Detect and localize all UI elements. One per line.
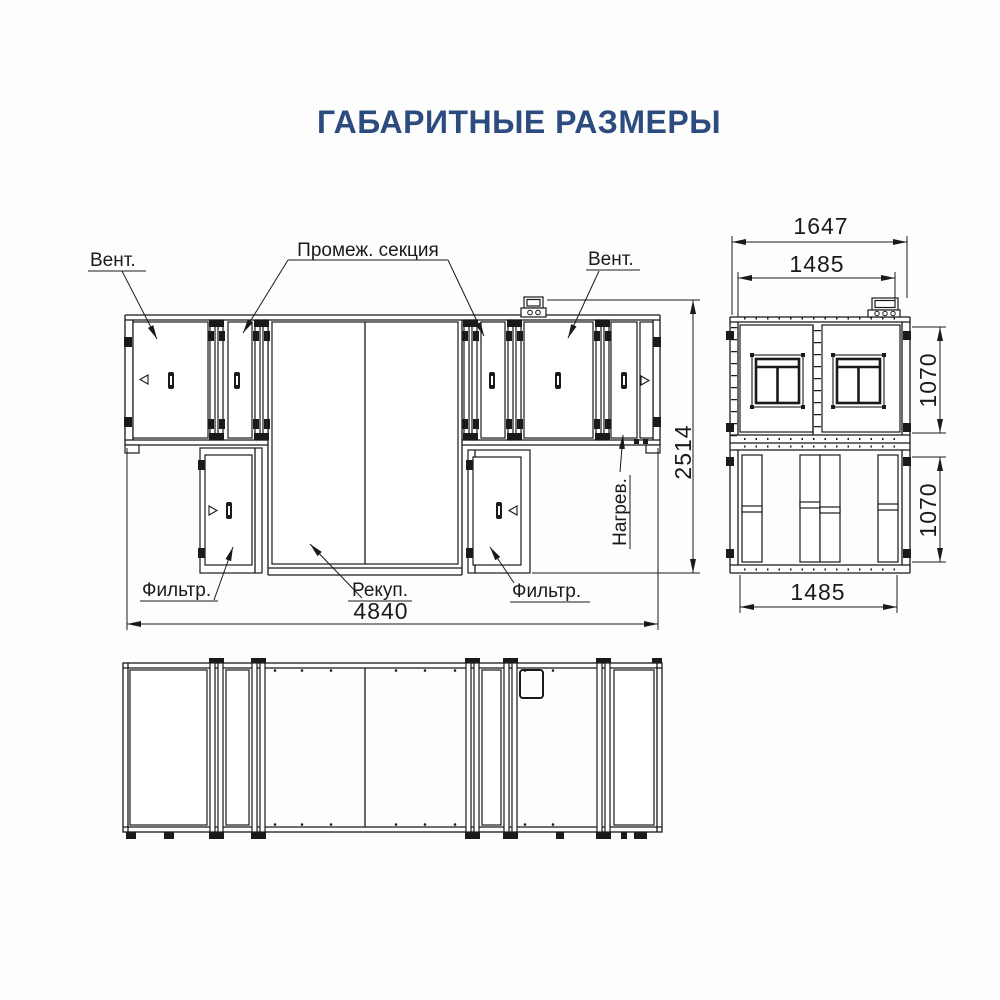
label-fan-right: Вент. xyxy=(588,249,634,270)
side-panel-right xyxy=(822,325,900,432)
plan-post xyxy=(251,658,266,839)
plan-post xyxy=(503,658,518,839)
side-view-upper xyxy=(726,298,911,443)
frame-post xyxy=(594,320,611,440)
latch-icon xyxy=(168,372,174,389)
foot xyxy=(126,832,136,839)
plan-post xyxy=(465,658,480,839)
plan-post xyxy=(596,658,611,839)
foot xyxy=(164,832,174,839)
label-filter-right: Фильтр. xyxy=(512,581,581,602)
plan-post xyxy=(209,658,224,839)
label-intermediate-section: Промеж. секция xyxy=(297,240,439,261)
dim-upper-tier-height: 1070 xyxy=(915,352,941,407)
control-box xyxy=(521,297,546,317)
plan-panel xyxy=(482,670,501,825)
bolt xyxy=(726,423,734,432)
hinge-icon xyxy=(653,337,661,347)
plan-panel xyxy=(614,670,654,825)
label-heater: Нагрев. xyxy=(610,478,631,546)
latch-icon xyxy=(555,372,561,389)
foot xyxy=(634,832,647,839)
bolt xyxy=(903,331,911,340)
bolt xyxy=(726,549,734,558)
label-filter-left: Фильтр. xyxy=(142,580,211,601)
dim-overall-height: 2514 xyxy=(670,424,696,479)
bolt xyxy=(726,457,734,466)
hinge-icon xyxy=(653,417,661,427)
side-view-lower xyxy=(726,443,911,573)
dim-overall-width: 1647 xyxy=(793,213,848,239)
latch-icon xyxy=(621,372,627,389)
dim-lower-body-width: 1485 xyxy=(790,579,845,605)
corner-nub xyxy=(652,658,662,663)
dim-overall-length: 4840 xyxy=(353,598,408,624)
hinge-icon xyxy=(124,417,132,427)
service-hatch xyxy=(520,670,543,698)
hinge-icon xyxy=(124,337,132,347)
front-view xyxy=(124,297,661,575)
label-fan-left: Вент. xyxy=(90,250,136,271)
label-recuperator: Рекуп. xyxy=(352,580,408,601)
control-box-side xyxy=(868,298,900,317)
technical-drawing: 4840 2514 1647 1485 1070 1070 1485 Вент.… xyxy=(0,0,1000,1000)
latch-icon xyxy=(234,372,240,389)
frame-post xyxy=(506,320,523,440)
latch-icon xyxy=(489,372,495,389)
plan-panel xyxy=(226,670,249,825)
bolt xyxy=(903,549,911,558)
dimensional-drawing-page: ГАБАРИТНЫЕ РАЗМЕРЫ xyxy=(0,0,1000,1000)
mount-block xyxy=(634,439,639,444)
frame-post xyxy=(208,320,225,440)
plan-panel xyxy=(130,670,207,825)
dim-body-width: 1485 xyxy=(789,251,844,277)
foot xyxy=(556,832,564,839)
mount-block xyxy=(643,439,648,444)
plan-view xyxy=(123,658,662,839)
bolt xyxy=(726,331,734,340)
frame-post xyxy=(462,320,479,440)
filter-box-right xyxy=(466,450,530,573)
bolt xyxy=(903,423,911,432)
dim-lower-tier-height: 1070 xyxy=(915,482,941,537)
latch-icon xyxy=(496,502,502,519)
foot xyxy=(621,832,627,839)
frame-post xyxy=(253,320,270,440)
coil-slats xyxy=(742,455,898,562)
bolt xyxy=(903,457,911,466)
latch-icon xyxy=(226,502,232,519)
